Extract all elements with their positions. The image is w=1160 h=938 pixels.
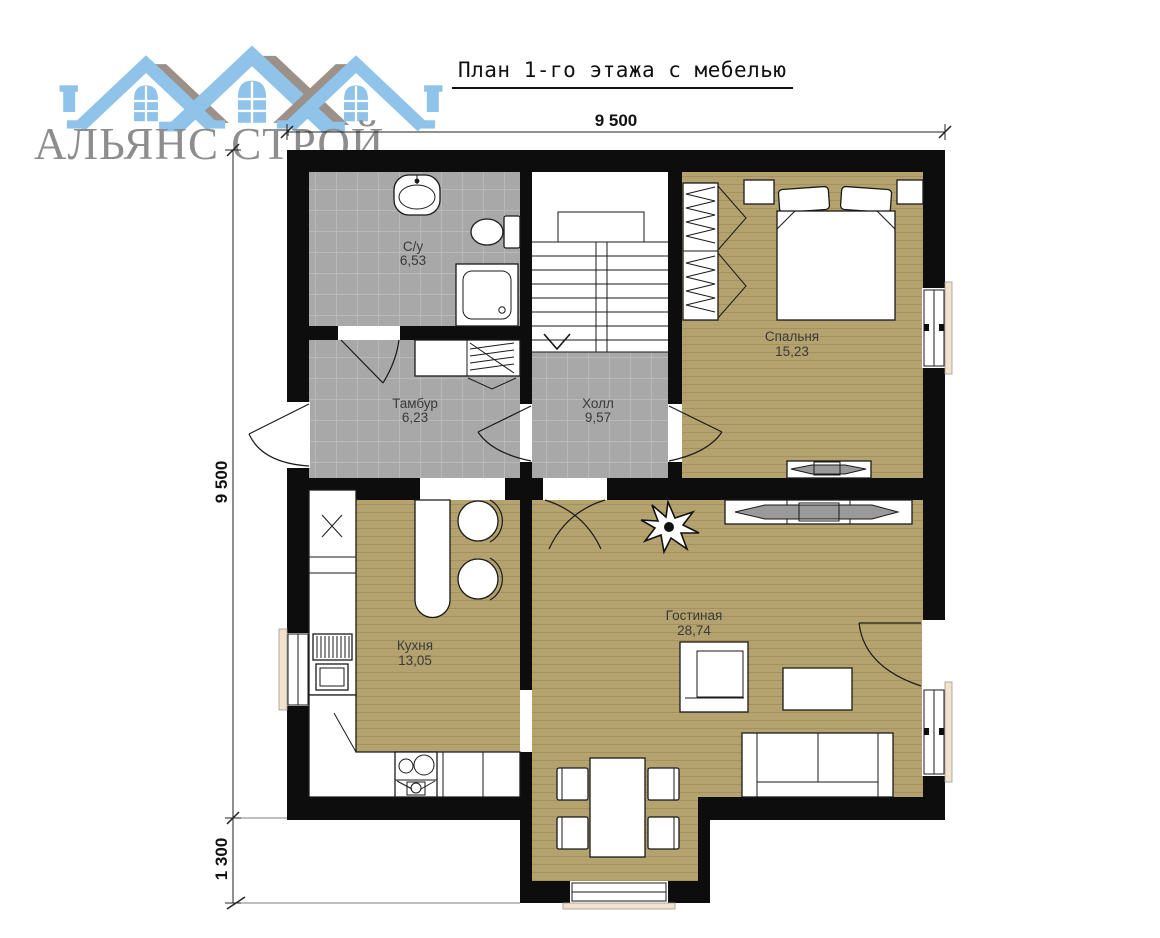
dim-label-left: 9 500 — [212, 461, 231, 504]
toilet-icon — [471, 216, 520, 248]
vestibule-hall-door-opening — [520, 404, 532, 462]
room-label-living: Гостиная — [666, 608, 723, 623]
room-area-bathroom: 6,53 — [400, 253, 426, 268]
bedroom-tv-stand-icon — [787, 461, 871, 478]
room-area-living: 28,74 — [677, 623, 711, 638]
vestibule-kitchen-opening — [420, 478, 505, 500]
dining-chair-icon — [648, 817, 679, 849]
hall-living-opening — [543, 478, 607, 500]
room-area-hall: 9,57 — [585, 410, 611, 425]
nightstand-icon — [897, 180, 923, 204]
dining-chair-icon — [648, 768, 679, 800]
armchair-icon — [680, 642, 748, 712]
room-area-bedroom: 15,23 — [775, 344, 809, 359]
terrace-door-opening — [922, 620, 946, 688]
sofa-icon — [742, 733, 893, 797]
dining-chair-icon — [557, 768, 588, 800]
room-label-hall: Холл — [582, 396, 614, 411]
dim-label-top: 9 500 — [595, 111, 638, 130]
room-label-bedroom: Спальня — [765, 329, 819, 344]
room-label-kitchen: Кухня — [397, 638, 433, 653]
bathroom-door-opening — [338, 326, 400, 340]
dining-table-icon — [590, 758, 645, 857]
room-label-bathroom: С/у — [403, 239, 424, 254]
coffee-table-icon — [783, 668, 852, 710]
bar-table-icon — [415, 500, 450, 618]
kitchen-living-opening — [520, 690, 532, 752]
hall-bedroom-door-opening — [668, 404, 682, 462]
nightstand-icon — [744, 180, 774, 204]
room-area-kitchen: 13,05 — [398, 653, 432, 668]
floor-plan-drawing: 9 500 9 500 1 300 С/у 6,53 Тамбур 6,23 Х… — [0, 0, 1160, 938]
room-area-vestibule: 6,23 — [402, 410, 428, 425]
room-label-vestibule: Тамбур — [392, 396, 438, 411]
sink-icon — [394, 175, 440, 215]
living-tv-stand-icon — [725, 500, 912, 524]
shower-icon — [456, 264, 518, 326]
stove-icon — [395, 752, 437, 797]
floor-plan-page: АЛЬЯНС СТРОЙ План 1-го этажа с мебелью — [0, 0, 1160, 938]
entrance-door-opening — [286, 402, 310, 468]
dining-chair-icon — [557, 817, 588, 849]
dimension-top: 9 500 — [281, 111, 951, 140]
dim-label-bottom-left: 1 300 — [212, 838, 231, 881]
